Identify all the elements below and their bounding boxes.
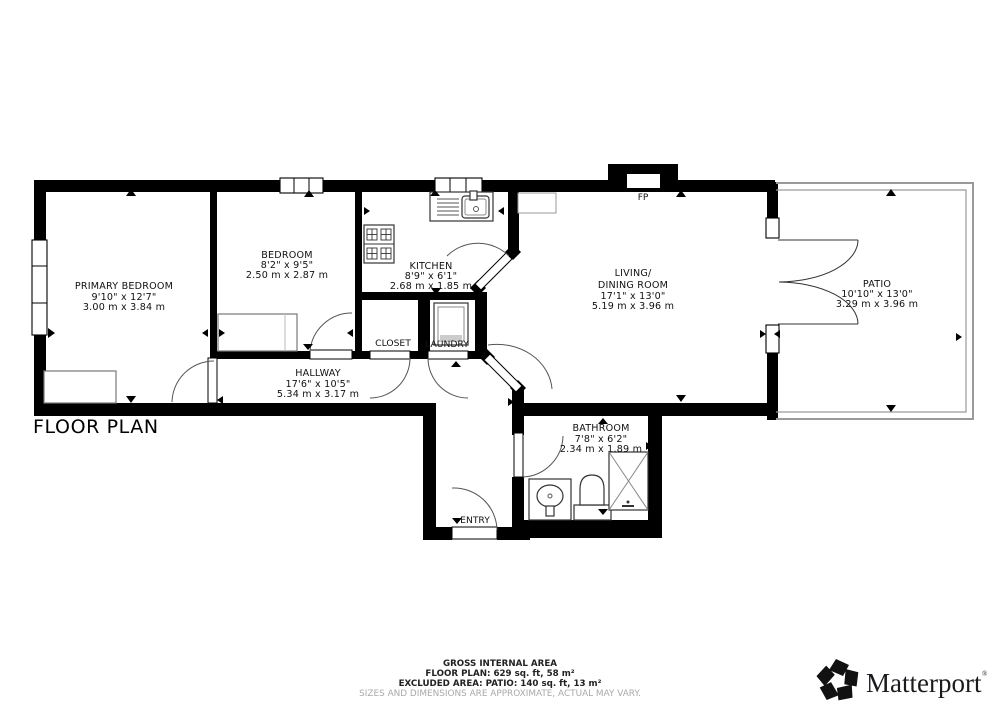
window-primary-left [32, 240, 47, 335]
label-fireplace: FP [638, 193, 649, 203]
footer: GROSS INTERNAL AREA FLOOR PLAN: 629 sq. … [359, 659, 641, 699]
window-bedroom-top [280, 178, 323, 193]
label-primary-bedroom: PRIMARY BEDROOM 9'10" x 12'7" 3.00 m x 3… [75, 281, 173, 313]
footer-excluded-area: EXCLUDED AREA: PATIO: 140 sq. ft, 13 m² [399, 679, 602, 689]
door-hallway-diagonal [484, 354, 522, 392]
french-doors-patio [778, 240, 858, 324]
window-living-right-lower [766, 325, 779, 353]
toilet [574, 475, 611, 520]
bathroom-vanity [529, 479, 571, 520]
svg-text:HALLWAY: HALLWAY [295, 368, 341, 379]
svg-text:5.34 m x 3.17 m: 5.34 m x 3.17 m [277, 389, 359, 400]
floor-plan-canvas: PRIMARY BEDROOM 9'10" x 12'7" 3.00 m x 3… [0, 0, 1000, 707]
window-living-right-upper [766, 218, 779, 238]
svg-text:LIVING/: LIVING/ [615, 268, 652, 279]
door-laundry [428, 351, 468, 359]
svg-text:PRIMARY BEDROOM: PRIMARY BEDROOM [75, 281, 173, 292]
shower [609, 452, 648, 510]
svg-text:2.50 m x 2.87 m: 2.50 m x 2.87 m [246, 270, 328, 281]
dresser-primary [44, 371, 116, 403]
svg-text:3.29 m x 3.96 m: 3.29 m x 3.96 m [836, 299, 918, 310]
svg-text:2.34 m x 1.89 m: 2.34 m x 1.89 m [560, 444, 642, 455]
footer-gross-area: GROSS INTERNAL AREA [443, 659, 557, 669]
label-bathroom: BATHROOM 7'8" x 6'2" 2.34 m x 1.89 m [560, 423, 642, 455]
svg-text:5.19 m x 3.96 m: 5.19 m x 3.96 m [592, 301, 674, 312]
firebox [627, 174, 660, 188]
svg-text:2.68 m x 1.85 m: 2.68 m x 1.85 m [390, 281, 472, 292]
footer-disclaimer: SIZES AND DIMENSIONS ARE APPROXIMATE, AC… [359, 689, 641, 699]
label-hallway: HALLWAY 17'6" x 10'5" 5.34 m x 3.17 m [277, 368, 359, 400]
footer-floor-plan-area: FLOOR PLAN: 629 sq. ft, 58 m² [425, 669, 574, 679]
door-primary-bedroom [208, 358, 217, 403]
svg-text:3.00 m x 3.84 m: 3.00 m x 3.84 m [83, 302, 165, 313]
label-patio: PATIO 10'10" x 13'0" 3.29 m x 3.96 m [836, 279, 918, 310]
page-title: FLOOR PLAN [33, 416, 159, 438]
label-kitchen: KITCHEN 8'9" x 6'1" 2.68 m x 1.85 m [390, 261, 472, 292]
brand-logo: Matterport ® [814, 659, 988, 705]
matterport-icon [814, 659, 862, 705]
door-bedroom [310, 350, 352, 359]
label-laundry: LAUNDRY [425, 339, 469, 350]
svg-text:BATHROOM: BATHROOM [572, 423, 629, 434]
door-closet [370, 351, 410, 359]
door-entry [452, 527, 497, 539]
door-kitchen-diagonal [475, 253, 512, 290]
label-entry: ENTRY [460, 515, 490, 526]
registered-mark: ® [982, 670, 988, 678]
matterport-wordmark: Matterport [866, 668, 982, 698]
label-living-dining: LIVING/ DINING ROOM 17'1" x 13'0" 5.19 m… [592, 268, 674, 312]
stove [364, 225, 394, 263]
windows [32, 178, 779, 353]
counter-living [518, 193, 556, 213]
label-bedroom: BEDROOM 8'2" x 9'5" 2.50 m x 2.87 m [246, 250, 328, 281]
label-closet: CLOSET [375, 338, 411, 349]
room-labels: PRIMARY BEDROOM 9'10" x 12'7" 3.00 m x 3… [75, 193, 918, 526]
svg-text:DINING ROOM: DINING ROOM [598, 280, 668, 291]
door-bathroom [514, 433, 523, 477]
dimension-markers [48, 189, 962, 524]
